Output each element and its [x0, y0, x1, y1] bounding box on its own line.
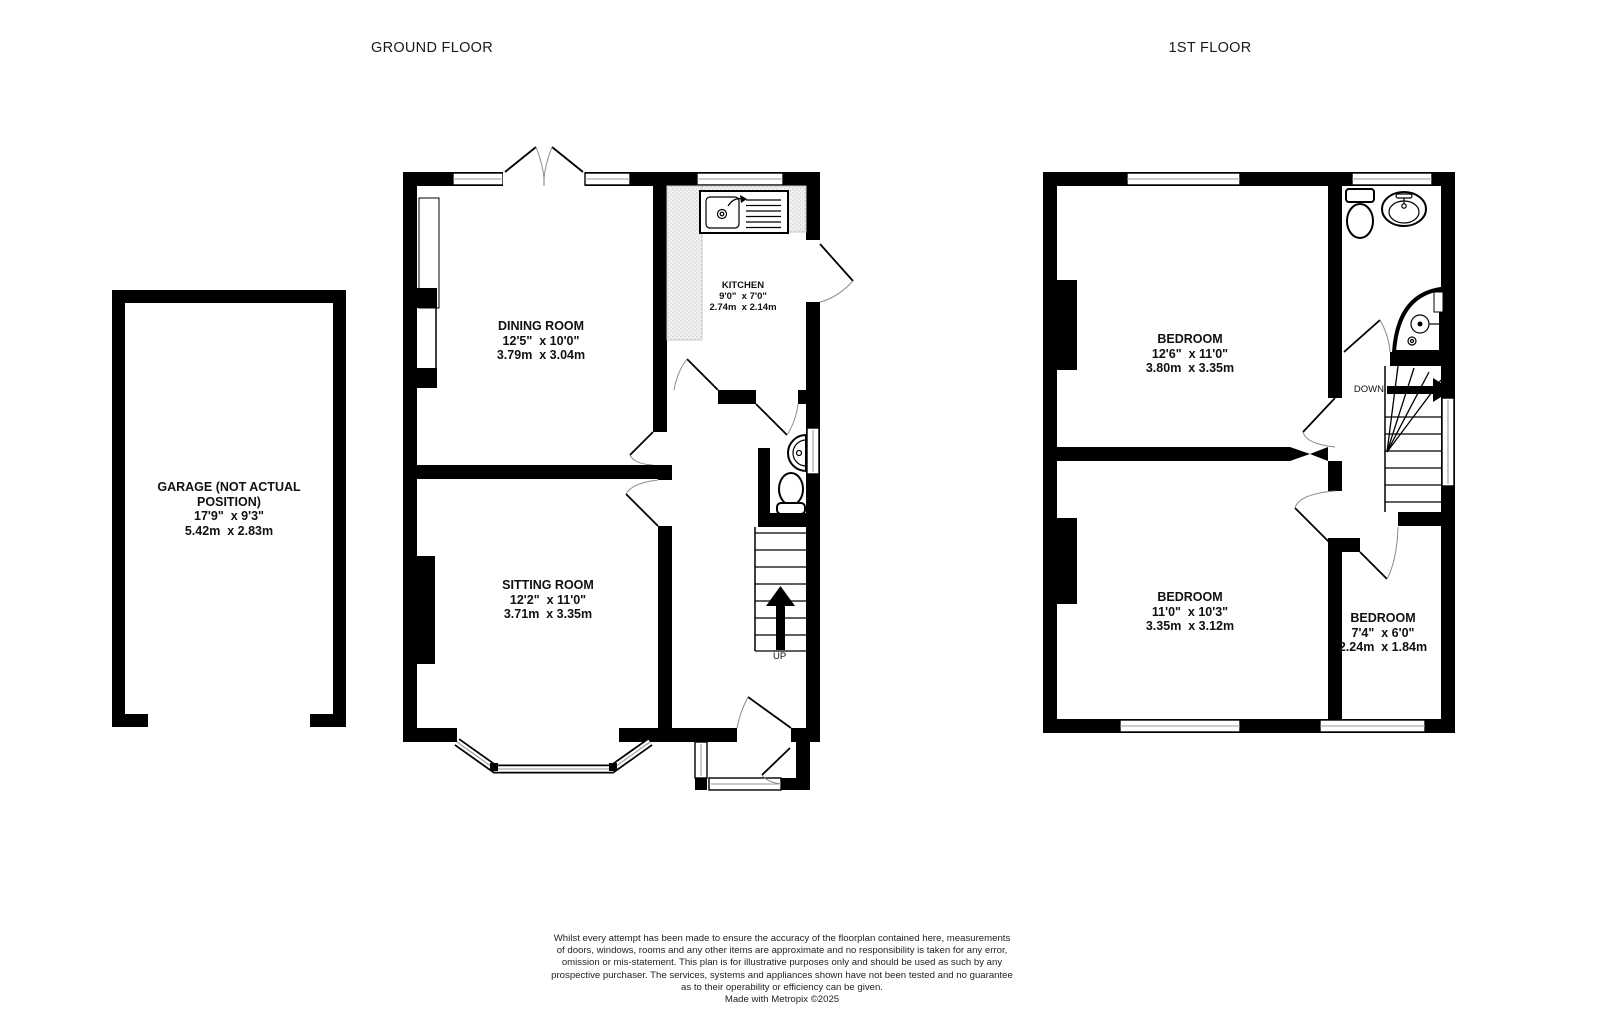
bathroom-window: [1352, 173, 1432, 185]
room-label-bedroom-3: BEDROOM 7'4" x 6'0" 2.24m x 1.84m: [1298, 611, 1468, 655]
door-jamb: [1290, 447, 1310, 461]
room-name: BEDROOM: [1080, 590, 1300, 605]
bathroom-toilet-icon: [1346, 189, 1374, 238]
dining-window: [585, 173, 630, 185]
bedroom1-door: [1303, 398, 1335, 447]
kitchen-door: [674, 359, 718, 390]
stairs-down-label: DOWN: [1322, 384, 1384, 395]
room-dimensions-metric: 3.71m x 3.35m: [438, 607, 658, 622]
bathroom-basin-icon: [1382, 192, 1426, 226]
room-name: BEDROOM: [1080, 332, 1300, 347]
room-dimensions-imperial: 11'0" x 10'3": [1080, 605, 1300, 620]
bathroom-door: [1344, 320, 1390, 352]
bedroom3-window: [1320, 720, 1425, 732]
room-label-bedroom-2: BEDROOM 11'0" x 10'3" 3.35m x 3.12m: [1080, 590, 1300, 634]
room-dimensions-metric: 5.42m x 2.83m: [124, 524, 334, 539]
bedroom2-window: [1120, 720, 1240, 732]
garage-door-jamb: [310, 714, 346, 727]
ground-floor-plan: [403, 147, 853, 790]
kitchen-external-door: [806, 240, 853, 302]
room-dimensions-metric: 3.35m x 3.12m: [1080, 619, 1300, 634]
room-name: GARAGE (NOT ACTUAL POSITION): [124, 480, 334, 509]
room-dimensions-metric: 3.80m x 3.35m: [1080, 361, 1300, 376]
room-label-bedroom-1: BEDROOM 12'6" x 11'0" 3.80m x 3.35m: [1080, 332, 1300, 376]
bedroom1-window: [1127, 173, 1240, 185]
porch: [695, 742, 810, 790]
room-label-garage: GARAGE (NOT ACTUAL POSITION) 17'9" x 9'3…: [124, 480, 334, 538]
porch-front-window: [709, 778, 781, 790]
shower-panel: [1434, 292, 1443, 312]
shower-icon: [1394, 289, 1443, 352]
chimney-breast: [1057, 518, 1077, 604]
bay-window: [457, 742, 650, 771]
kitchen-sink-icon: [700, 191, 788, 233]
room-dimensions-imperial: 7'4" x 6'0": [1298, 626, 1468, 641]
front-door: [737, 697, 791, 728]
room-label-kitchen: KITCHEN 9'0" x 7'0" 2.74m x 2.14m: [673, 280, 813, 313]
disclaimer-line: Whilst every attempt has been made to en…: [482, 933, 1082, 945]
french-doors: [503, 147, 585, 186]
garage-door-jamb: [112, 714, 148, 727]
dining-door: [630, 432, 653, 465]
room-dimensions-imperial: 12'6" x 11'0": [1080, 347, 1300, 362]
disclaimer-line: of doors, windows, rooms and any other i…: [482, 945, 1082, 957]
room-dimensions-imperial: 17'9" x 9'3": [124, 509, 334, 524]
disclaimer: Whilst every attempt has been made to en…: [482, 933, 1082, 1006]
room-dimensions-metric: 3.79m x 3.04m: [431, 348, 651, 363]
made-with-credit: Made with Metropix ©2025: [482, 994, 1082, 1006]
room-name: BEDROOM: [1298, 611, 1468, 626]
door-jamb: [1310, 447, 1328, 461]
chimney-breast: [417, 556, 435, 664]
room-label-dining-room: DINING ROOM 12'5" x 10'0" 3.79m x 3.04m: [431, 319, 651, 363]
wc-door: [756, 404, 798, 435]
chimney-breast: [1057, 280, 1077, 370]
room-dimensions-metric: 2.24m x 1.84m: [1298, 640, 1468, 655]
wc-basin-icon: [788, 435, 806, 471]
stairs-up-label: UP: [773, 651, 786, 662]
bedroom3-door: [1360, 527, 1398, 579]
room-label-sitting-room: SITTING ROOM 12'2" x 11'0" 3.71m x 3.35m: [438, 578, 658, 622]
room-dimensions-imperial: 9'0" x 7'0": [673, 291, 813, 302]
room-name: DINING ROOM: [431, 319, 651, 334]
disclaimer-line: prospective purchaser. The services, sys…: [482, 970, 1082, 982]
wc-toilet-icon: [777, 473, 805, 514]
first-floor-title: 1ST FLOOR: [1168, 40, 1251, 56]
room-name: KITCHEN: [673, 280, 813, 291]
wc-window: [807, 428, 819, 474]
disclaimer-line: as to their operability or efficiency ca…: [482, 982, 1082, 994]
kitchen-window: [697, 173, 783, 185]
disclaimer-line: omission or mis-statement. This plan is …: [482, 957, 1082, 969]
sitting-room-door: [626, 480, 658, 526]
dining-window: [453, 173, 503, 185]
landing-window: [1442, 398, 1454, 486]
room-dimensions-imperial: 12'2" x 11'0": [438, 593, 658, 608]
room-dimensions-metric: 2.74m x 2.14m: [673, 302, 813, 313]
room-dimensions-imperial: 12'5" x 10'0": [431, 334, 651, 349]
room-name: SITTING ROOM: [438, 578, 658, 593]
stairs-up: [755, 527, 806, 651]
porch-side-window: [695, 742, 707, 778]
ground-floor-title: GROUND FLOOR: [371, 40, 493, 56]
winder-steps: [1387, 366, 1441, 452]
floorplan-page: { "titles": { "ground_floor": "GROUND FL…: [0, 0, 1600, 1029]
